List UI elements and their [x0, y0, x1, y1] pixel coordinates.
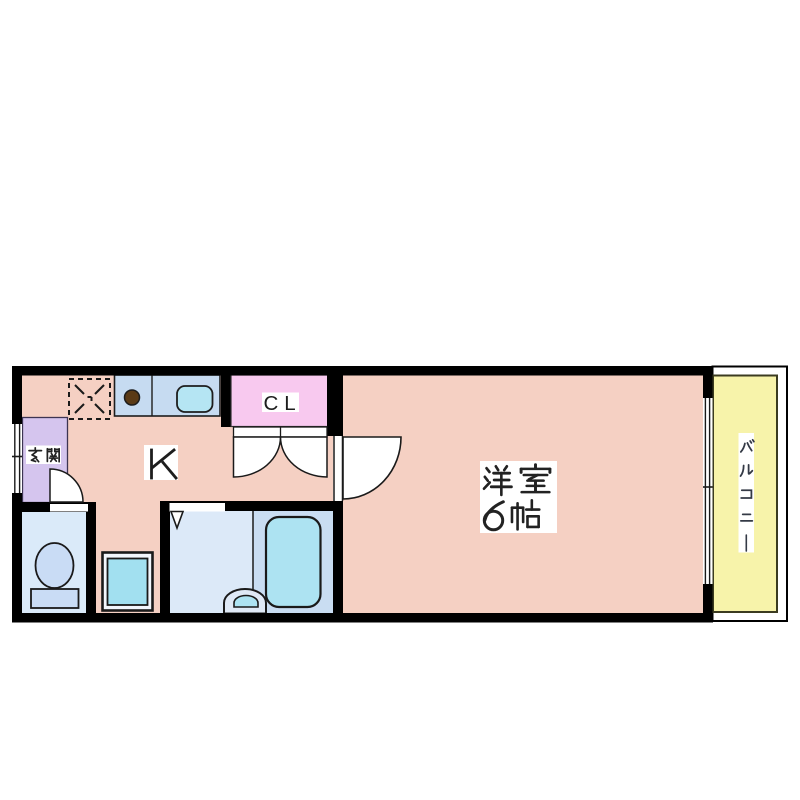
- svg-text:CL: CL: [264, 392, 302, 415]
